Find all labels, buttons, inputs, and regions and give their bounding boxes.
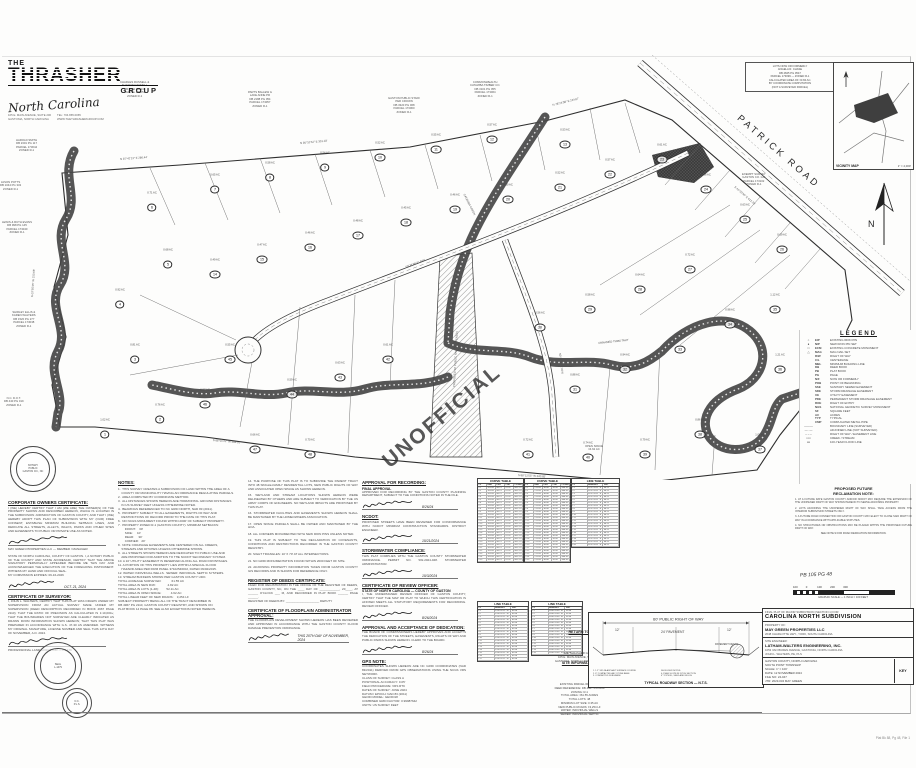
- table-cell: L5: [478, 622, 495, 624]
- roadway-section-drawing: 60' PUBLIC RIGHT OF WAY 12' 12' 24' PAVE…: [589, 613, 761, 659]
- table-cell: S48°02'W: [561, 499, 570, 501]
- table-cell: 325.00: [487, 499, 496, 501]
- table-cell: 61.08: [511, 649, 528, 651]
- table-cell: L13: [572, 523, 588, 525]
- table-cell: 35.94: [552, 520, 561, 522]
- table-cell: N52°14'E: [514, 550, 523, 552]
- table-cell: 36.08: [543, 499, 552, 501]
- table-cell: 35.94: [552, 511, 561, 513]
- table-cell: 47.92: [505, 490, 514, 492]
- table-cell: N52°14'E: [514, 496, 523, 498]
- table-cell: N 52°14'37" E: [588, 499, 604, 501]
- table-cell: S48°02'W: [561, 520, 570, 522]
- table-row: L17S 04°55'12" W61.08: [478, 658, 528, 661]
- note-item: 18. ALL CORNERS MONUMENTED WITH NEW IRON…: [248, 533, 358, 537]
- table-cell: N 52°14'37" E: [588, 502, 604, 504]
- table-cell: 48.21: [496, 496, 505, 498]
- table-cell: 275.00: [534, 493, 543, 495]
- table-cell: 48.21: [603, 532, 619, 534]
- subdivision-name: CAROLINA NORTH SUBDIVISION: [765, 614, 911, 620]
- table-cell: 275.00: [534, 559, 543, 561]
- notes-column: NOTES: 1. THIS SURVEY CREATES A SUBDIVIS…: [118, 480, 244, 611]
- note-line: PLAT BOOK 14 PAGE 88. SEE ALSO EXCEPTION…: [118, 607, 244, 611]
- approval-section-title: CERTIFICATE OF REVIEW OFFICER:: [362, 583, 466, 588]
- table-cell: S48°02'W: [561, 538, 570, 540]
- table-cell: 47.92: [505, 514, 514, 516]
- table-cell: 48.21: [496, 511, 505, 513]
- table-cell: 36.08: [543, 520, 552, 522]
- table-cell: 48.21: [603, 514, 619, 516]
- table-cell: 36.08: [543, 541, 552, 543]
- table-cell: 275.00: [534, 553, 543, 555]
- table-cell: C1: [525, 487, 534, 489]
- table-cell: N 52°14'37" E: [588, 526, 604, 528]
- table-cell: L1: [572, 487, 588, 489]
- table-cell: C20: [478, 544, 487, 546]
- table-cell: 36.08: [543, 508, 552, 510]
- table-cell: S48°02'W: [561, 535, 570, 537]
- table-cell: C24: [478, 556, 487, 558]
- recording-stamp: Plat Bk 88, Pg 48, File 1: [876, 736, 910, 740]
- north-arrow: N: [868, 183, 893, 245]
- table-cell: 325.00: [487, 496, 496, 498]
- table-cell: 61.08: [511, 631, 528, 633]
- scale-tick: 300: [833, 585, 858, 589]
- notary-seal-text: NOTARY PUBLIC GASTON CO., NC: [16, 452, 50, 486]
- table-cell: 36.08: [543, 538, 552, 540]
- table-cell: 35.94: [552, 502, 561, 504]
- table-cell: 48.21: [603, 520, 619, 522]
- table-cell: 48.21: [496, 559, 505, 561]
- table-cell: 36.08: [543, 535, 552, 537]
- table-cell: S48°02'W: [561, 550, 570, 552]
- table-cell: C3: [478, 493, 487, 495]
- table-cell: 48.21: [496, 502, 505, 504]
- vicinity-map: VICINITY MAP 1" = 2,000': [833, 62, 914, 170]
- table-cell: 61.08: [511, 643, 528, 645]
- table-cell: 48.21: [603, 502, 619, 504]
- table-cell: N52°14'E: [514, 535, 523, 537]
- cul-de-sac: [235, 337, 261, 363]
- table-cell: 47.92: [505, 493, 514, 495]
- table-cell: C23: [478, 553, 487, 555]
- table-cell: L5: [572, 499, 588, 501]
- table-cell: 47.92: [505, 532, 514, 534]
- table-cell: C11: [478, 517, 487, 519]
- table-cell: 48.21: [496, 526, 505, 528]
- table-cell: C4: [525, 496, 534, 498]
- table-cell: 48.21: [496, 508, 505, 510]
- table-cell: C18: [478, 538, 487, 540]
- note-item: 17. OPEN SPACE PARCELS SHALL BE OWNED AN…: [248, 523, 358, 531]
- table-cell: 47.92: [505, 487, 514, 489]
- table-cell: RAD: [534, 484, 543, 486]
- plat-book-stamp: PB 105 PG 48: [800, 571, 832, 578]
- table-cell: 35.94: [552, 523, 561, 525]
- certificate-of-surveyor-text: I, JOHN L. WALTERS, CERTIFY THAT THIS PL…: [8, 600, 114, 635]
- table-cell: 35.94: [552, 547, 561, 549]
- table-cell: 35.94: [552, 535, 561, 537]
- approval-section-text: I, THE UNDERSIGNED REVIEW OFFICER OF GAS…: [362, 593, 466, 609]
- table-cell: 35.94: [552, 517, 561, 519]
- table-cell: C11: [525, 517, 534, 519]
- table-cell: C10: [478, 514, 487, 516]
- table-cell: C6: [525, 502, 534, 504]
- approval-signature: [362, 642, 415, 656]
- table-cell: N52°14'E: [514, 526, 523, 528]
- table-cell: 36.08: [543, 526, 552, 528]
- table-cell: S 04°55'12" W: [495, 643, 512, 645]
- curve-table-1: CURVE TABLEC#RADLENCHDCH BRGC1325.0048.2…: [477, 478, 524, 563]
- table-cell: 35.94: [552, 538, 561, 540]
- approval-signature: [362, 497, 415, 511]
- table-cell: 35.94: [552, 499, 561, 501]
- table-cell: C14: [478, 526, 487, 528]
- notes-title: NOTES:: [118, 480, 244, 485]
- table-cell: 35.94: [552, 490, 561, 492]
- table-cell: L13: [478, 646, 495, 648]
- table-cell: 36.08: [543, 511, 552, 513]
- notary-text: STATE OF NORTH CAROLINA, COUNTY OF GASTO…: [8, 555, 114, 574]
- table-cell: N 52°14'37" E: [588, 493, 604, 495]
- table-cell: 48.21: [496, 553, 505, 555]
- table-cell: C2: [478, 490, 487, 492]
- table-cell: 36.08: [543, 550, 552, 552]
- table-cell: 61.08: [511, 640, 528, 642]
- table-cell: 275.00: [534, 490, 543, 492]
- table-cell: L15: [572, 529, 588, 531]
- table-cell: 48.21: [496, 523, 505, 525]
- table-cell: L9: [572, 511, 588, 513]
- table-cell: 35.94: [552, 505, 561, 507]
- table-cell: C13: [478, 523, 487, 525]
- table-cell: C9: [525, 511, 534, 513]
- floodplain-approval-title: CERTIFICATE OF FLOODPLAIN ADMINISTRATOR …: [248, 608, 358, 618]
- table-cell: S48°02'W: [561, 508, 570, 510]
- owner-signature: [8, 533, 69, 547]
- table-cell: N52°14'E: [514, 538, 523, 540]
- table-cell: 275.00: [534, 505, 543, 507]
- table-cell: 48.21: [496, 490, 505, 492]
- floodplain-signature: [248, 631, 290, 644]
- table-cell: 48.21: [603, 544, 619, 546]
- table-cell: 47.92: [505, 535, 514, 537]
- table-cell: 48.21: [603, 541, 619, 543]
- table-cell: 325.00: [487, 493, 496, 495]
- table-cell: 47.92: [505, 511, 514, 513]
- table-cell: 48.21: [496, 544, 505, 546]
- table-cell: LEN: [496, 484, 505, 486]
- table-cell: 61.08: [511, 610, 528, 612]
- table-cell: N52°14'E: [514, 523, 523, 525]
- table-cell: N52°14'E: [514, 541, 523, 543]
- vicinity-map-scale: 1" = 2,000': [898, 164, 911, 168]
- table-cell: S 04°55'12" W: [495, 652, 512, 654]
- table-cell: 275.00: [534, 499, 543, 501]
- table-cell: L12: [478, 643, 495, 645]
- table-cell: C21: [478, 547, 487, 549]
- table-cell: C8: [478, 508, 487, 510]
- north-label: N: [868, 219, 875, 229]
- table-cell: N52°14'E: [514, 514, 523, 516]
- table-cell: L16: [572, 532, 588, 534]
- approvals-column: APPROVAL FOR RECORDING: FINAL APPROVAL A…: [362, 476, 466, 708]
- detail-circle-label: PAVEMENT DETAIL: [715, 642, 739, 646]
- legend-title: LEGEND: [802, 331, 915, 337]
- table-cell: L2: [478, 613, 495, 615]
- table-cell: N 52°14'37" E: [588, 538, 604, 540]
- legend-desc: 100-YEAR FLOOD LINE: [830, 441, 915, 445]
- table-cell: L6: [478, 625, 495, 627]
- table-cell: 36.08: [543, 529, 552, 531]
- table-cell: 325.00: [487, 523, 496, 525]
- table-cell: 35.94: [552, 532, 561, 534]
- table-cell: 61.08: [511, 628, 528, 630]
- table-cell: 48.21: [496, 538, 505, 540]
- table-cell: L8: [572, 508, 588, 510]
- table-cell: 61.08: [511, 658, 528, 660]
- table-cell: BEARING: [549, 607, 566, 609]
- table-cell: L7: [572, 505, 588, 507]
- table-cell: 48.21: [603, 523, 619, 525]
- table-cell: C17: [525, 535, 534, 537]
- table-cell: N52°14'E: [514, 532, 523, 534]
- table-cell: S48°02'W: [561, 511, 570, 513]
- table-cell: S48°02'W: [561, 487, 570, 489]
- table-cell: DIST: [603, 484, 619, 486]
- table-cell: 48.21: [496, 529, 505, 531]
- table-cell: 36.08: [543, 493, 552, 495]
- table-cell: DIST: [565, 607, 582, 609]
- table-cell: 275.00: [534, 544, 543, 546]
- approval-date: 10/3/2024: [422, 574, 437, 578]
- approval-section: NCDOT: PROPOSED STREETS HAVE BEEN REVIEW…: [362, 514, 466, 544]
- approval-section-text: APPROVED FOR RECORDING BY THE GASTON COU…: [362, 491, 466, 499]
- table-cell: S 04°55'12" W: [495, 619, 512, 621]
- note-line: COUNTY OR MUNICIPALITY HAVING AN ORDINAN…: [118, 491, 244, 495]
- table-cell: N 52°14'37" E: [588, 514, 604, 516]
- floodplain-approval-text: THE FLOODPLAIN DEVELOPMENT SHOWN HEREON …: [248, 619, 358, 631]
- table-cell: 61.08: [511, 619, 528, 621]
- table-cell: N52°14'E: [514, 511, 523, 513]
- table-cell: 325.00: [487, 544, 496, 546]
- table-cell: N 52°14'37" E: [588, 541, 604, 543]
- table-cell: 61.08: [511, 616, 528, 618]
- table-cell: S 04°55'12" W: [495, 658, 512, 660]
- table-cell: N52°14'E: [514, 487, 523, 489]
- approval-section: APPROVAL AND ACCEPTANCE OF DEDICATION: T…: [362, 625, 466, 655]
- table-row: C25325.0048.2147.92N52°14'E: [478, 559, 523, 562]
- table-cell: C15: [525, 529, 534, 531]
- table-cell: N 52°14'37" E: [588, 520, 604, 522]
- register-of-deeds-title: REGISTER OF DEEDS CERTIFICATE:: [248, 578, 358, 583]
- table-cell: 36.08: [543, 559, 552, 561]
- table-cell: 275.00: [534, 523, 543, 525]
- note-item: 14. THE PURPOSE OF THIS PLAT IS TO SUBDI…: [248, 480, 358, 492]
- table-cell: N 52°14'37" E: [588, 544, 604, 546]
- table-cell: C3: [525, 493, 534, 495]
- table-cell: C2: [525, 490, 534, 492]
- pls-seal-text: N.C. P.L.S.: [66, 692, 88, 714]
- table-cell: 36.08: [543, 505, 552, 507]
- table-cell: S48°02'W: [561, 517, 570, 519]
- table-cell: 325.00: [487, 487, 496, 489]
- table-cell: 35.94: [552, 493, 561, 495]
- table-cell: N52°14'E: [514, 517, 523, 519]
- table-cell: 48.21: [496, 493, 505, 495]
- table-cell: C17: [478, 535, 487, 537]
- table-cell: 48.21: [496, 532, 505, 534]
- line-table-1: LINE TABLEL#BEARINGDISTL1N 52°14'37" E48…: [571, 478, 620, 548]
- table-cell: C22: [478, 550, 487, 552]
- table-cell: 325.00: [487, 502, 496, 504]
- table-cell: 47.92: [505, 559, 514, 561]
- table-cell: 61.08: [511, 622, 528, 624]
- approval-date: 8/26/24: [422, 505, 433, 509]
- table-cell: S 04°55'12" W: [495, 622, 512, 624]
- note-line: 3. ALL DISTANCES SHOWN HEREON ARE HORIZO…: [118, 499, 244, 503]
- table-cell: L#: [572, 484, 588, 486]
- table-cell: L2: [572, 490, 588, 492]
- approval-section: CERTIFICATE OF REVIEW OFFICER: STATE OF …: [362, 583, 466, 621]
- roadway-section-detail: 60' PUBLIC RIGHT OF WAY 12' 12' 24' PAVE…: [588, 612, 764, 688]
- detail-pavement-dim: 24' PAVEMENT: [661, 630, 685, 634]
- approval-signature: [362, 532, 415, 546]
- table-cell: 35.94: [552, 508, 561, 510]
- table-cell: N52°14'E: [514, 556, 523, 558]
- table-cell: 48.21: [603, 487, 619, 489]
- table-cell: 47.92: [505, 547, 514, 549]
- table-cell: C5: [478, 499, 487, 501]
- table-cell: 48.21: [496, 487, 505, 489]
- table-cell: 61.08: [511, 613, 528, 615]
- table-cell: N52°14'E: [514, 553, 523, 555]
- table-cell: N 52°14'37" E: [588, 511, 604, 513]
- table-cell: N 52°14'37" E: [588, 532, 604, 534]
- approval-section-title: NCDOT:: [362, 514, 466, 519]
- table-cell: 275.00: [534, 517, 543, 519]
- plat-sheet: N CHARLES RUSSELL & SHARON DARNELL DB 19…: [0, 0, 916, 768]
- table-cell: N52°14'E: [514, 520, 523, 522]
- table-cell: 48.21: [496, 520, 505, 522]
- table-cell: C19: [525, 541, 534, 543]
- table-cell: 325.00: [487, 541, 496, 543]
- table-cell: 275.00: [534, 511, 543, 513]
- note-item: 21. NO GRID MONUMENTATION FOUND WITHIN 2…: [248, 560, 358, 564]
- table-cell: CH BRG: [561, 484, 570, 486]
- table-cell: S48°02'W: [561, 532, 570, 534]
- table-cell: 36.08: [543, 487, 552, 489]
- table-cell: L6: [572, 502, 588, 504]
- table-cell: C10: [525, 514, 534, 516]
- certificate-of-surveyor-title: CERTIFICATE OF SURVEYOR:: [8, 594, 114, 599]
- table-cell: N52°14'E: [514, 490, 523, 492]
- table-cell: 48.21: [603, 517, 619, 519]
- legend-row: ▪▪▪ 100-YEAR FLOOD LINE: [802, 441, 915, 445]
- table-cell: 36.08: [543, 502, 552, 504]
- title-block-key-cell: KEY: [894, 659, 911, 683]
- table-cell: BEARING: [588, 484, 604, 486]
- table-cell: N 52°14'37" E: [588, 517, 604, 519]
- logo-name: THRASHER: [8, 67, 158, 85]
- table-cell: 275.00: [534, 538, 543, 540]
- corporate-owners-certificate-text: I (WE) HEREBY CERTIFY THAT I AM (WE ARE)…: [8, 507, 114, 534]
- table-cell: S48°02'W: [561, 544, 570, 546]
- table-cell: S 04°55'12" W: [495, 616, 512, 618]
- table-cell: 325.00: [487, 553, 496, 555]
- table-cell: 275.00: [534, 487, 543, 489]
- table-cell: 275.00: [534, 529, 543, 531]
- table-cell: S 04°55'12" W: [495, 649, 512, 651]
- table-cell: L19: [572, 541, 588, 543]
- table-cell: C7: [525, 505, 534, 507]
- table-cell: S 04°55'12" W: [495, 655, 512, 657]
- table-cell: C22: [525, 550, 534, 552]
- table-cell: S48°02'W: [561, 493, 570, 495]
- notary-signature: [8, 577, 57, 590]
- table-cell: 275.00: [534, 541, 543, 543]
- table-cell: S48°02'W: [561, 553, 570, 555]
- table-cell: S48°02'W: [561, 490, 570, 492]
- table-cell: N 52°14'37" E: [588, 529, 604, 531]
- table-cell: 48.21: [603, 526, 619, 528]
- table-cell: 275.00: [534, 508, 543, 510]
- table-cell: 36.08: [543, 547, 552, 549]
- table-cell: 48.21: [496, 499, 505, 501]
- note-line: 1. THIS SURVEY CREATES A SUBDIVISION OF …: [118, 487, 244, 491]
- table-cell: 48.21: [603, 511, 619, 513]
- table-cell: 61.08: [511, 646, 528, 648]
- register-of-deeds-text: FILED FOR REGISTRATION IN THE OFFICE OF …: [248, 584, 358, 603]
- table-cell: 47.92: [505, 556, 514, 558]
- table-cell: N 52°14'37" E: [588, 508, 604, 510]
- table-cell: 47.92: [505, 517, 514, 519]
- floodplain-date: THIS 20TH DAY OF NOVEMBER, 2024: [297, 634, 349, 642]
- logo-address-2: TEL: 704.865.0065 WWW.THETHRASHERGROUP.C…: [57, 113, 104, 121]
- gps-note-text: COORDINATES SHOWN HEREON ARE NC GRID COO…: [362, 665, 466, 708]
- approval-signature: [362, 608, 415, 622]
- table-cell: L17: [478, 658, 495, 660]
- table-cell: L4: [478, 619, 495, 621]
- table-cell: 275.00: [534, 556, 543, 558]
- table-cell: C5: [525, 499, 534, 501]
- deed-reference-box: LOTS NOW OR FORMERLY ANGELA R. CHASE DB …: [745, 62, 835, 92]
- owner-name-line: MAY GREEN PROPERTIES LLC — MEMBER / MANA…: [8, 548, 114, 552]
- table-cell: 36.08: [543, 517, 552, 519]
- legend: LEGEND ○ EIP EXISTING IRON PIN ● NIP NEW…: [799, 330, 916, 484]
- notary-date: OCT. 21, 2024: [64, 585, 86, 589]
- table-cell: S48°02'W: [561, 547, 570, 549]
- title-block: FINAL PLAT OF MAJOR SUBDIVISION (SECTION…: [762, 608, 914, 685]
- corporate-owners-certificate-title: CORPORATE OWNERS CERTIFICATE:: [8, 500, 114, 505]
- table-cell: C13: [525, 523, 534, 525]
- certificates-column-a: CORPORATE OWNERS CERTIFICATE: I (WE) HER…: [8, 496, 114, 653]
- table-cell: CHD: [552, 484, 561, 486]
- table-cell: 275.00: [534, 550, 543, 552]
- table-cell: 325.00: [487, 559, 496, 561]
- table-cell: S 04°55'12" W: [495, 637, 512, 639]
- table-cell: S48°02'W: [561, 496, 570, 498]
- table-cell: L20: [572, 544, 588, 546]
- table-cell: 48.21: [496, 556, 505, 558]
- table-cell: 325.00: [487, 511, 496, 513]
- table-cell: 47.92: [505, 529, 514, 531]
- table-cell: 35.94: [552, 529, 561, 531]
- surveyor-seal: SEAL L-1479: [34, 642, 82, 690]
- table-cell: 35.94: [552, 556, 561, 558]
- table-cell: 275.00: [534, 532, 543, 534]
- line-table-2: LINE TABLEL#BEARINGDISTL1S 04°55'12" W61…: [477, 601, 529, 662]
